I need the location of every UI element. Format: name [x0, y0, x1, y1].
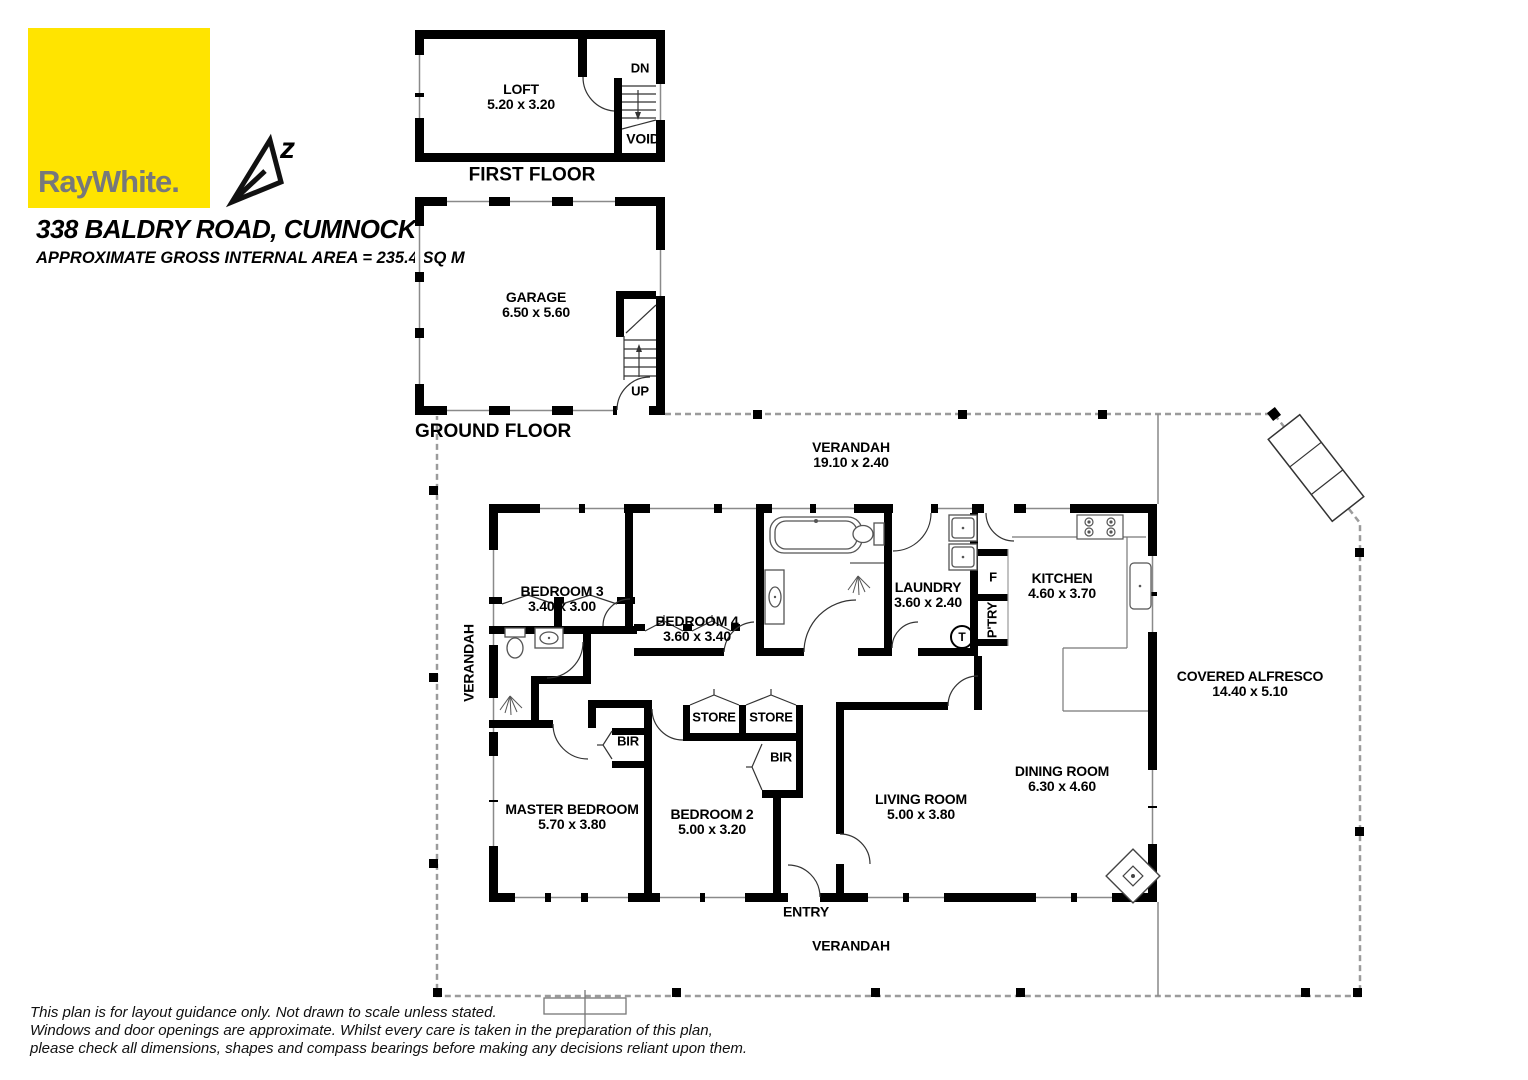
- room-name: BEDROOM 4: [656, 614, 739, 629]
- room-name: COVERED ALFRESCO: [1177, 669, 1323, 684]
- stairs-dn-label: DN: [631, 61, 649, 76]
- room-name: MASTER BEDROOM: [505, 802, 638, 817]
- stairs-up-label: UP: [631, 384, 649, 399]
- room-name: DINING ROOM: [1015, 764, 1109, 779]
- disclaimer-line-1: This plan is for layout guidance only. N…: [30, 1004, 747, 1022]
- room-label-living-room: LIVING ROOM 5.00 x 3.80: [875, 792, 967, 822]
- room-dims: 3.60 x 3.40: [656, 629, 739, 644]
- room-name: BEDROOM 3: [521, 584, 604, 599]
- room-dims: 3.40 x 3.00: [521, 599, 604, 614]
- room-dims: 6.50 x 5.60: [502, 305, 570, 320]
- void-label: VOID: [626, 132, 659, 147]
- room-name: KITCHEN: [1028, 571, 1096, 586]
- room-dims: 5.00 x 3.20: [671, 822, 754, 837]
- room-name: LIVING ROOM: [875, 792, 967, 807]
- first-floor-title: FIRST FLOOR: [469, 168, 596, 183]
- room-label-kitchen: KITCHEN 4.60 x 3.70: [1028, 571, 1096, 601]
- room-label-bedroom-3: BEDROOM 3 3.40 x 3.00: [521, 584, 604, 614]
- room-dims: 5.20 x 3.20: [487, 97, 555, 112]
- room-dims: 14.40 x 5.10: [1177, 684, 1323, 699]
- room-label-loft: LOFT 5.20 x 3.20: [487, 82, 555, 112]
- disclaimer-line-3: please check all dimensions, shapes and …: [30, 1040, 747, 1058]
- room-label-garage: GARAGE 6.50 x 5.60: [502, 290, 570, 320]
- room-label-dining-room: DINING ROOM 6.30 x 4.60: [1015, 764, 1109, 794]
- room-name: BEDROOM 2: [671, 807, 754, 822]
- room-label-alfresco: COVERED ALFRESCO 14.40 x 5.10: [1177, 669, 1323, 699]
- ground-floor-title: GROUND FLOOR: [415, 424, 571, 439]
- room-name: VERANDAH: [812, 440, 890, 455]
- floorplan-page: RayWhite. z 338 BALDRY ROAD, CUMNOCK APP…: [0, 0, 1528, 1080]
- room-label-master-bedroom: MASTER BEDROOM 5.70 x 3.80: [505, 802, 638, 832]
- kitchen-fixtures: [1008, 515, 1151, 711]
- room-label-bedroom-4: BEDROOM 4 3.60 x 3.40: [656, 614, 739, 644]
- disclaimer-line-2: Windows and door openings are approximat…: [30, 1022, 747, 1040]
- room-label-laundry: LAUNDRY 3.60 x 2.40: [894, 580, 962, 610]
- room-label-verandah-left: VERANDAH: [462, 624, 477, 702]
- room-label-bedroom-2: BEDROOM 2 5.00 x 3.20: [671, 807, 754, 837]
- store-label-1: STORE: [692, 710, 736, 725]
- floor-plan-drawing: [0, 0, 1528, 1080]
- disclaimer-text: This plan is for layout guidance only. N…: [30, 1004, 747, 1058]
- room-name: GARAGE: [502, 290, 570, 305]
- room-dims: 4.60 x 3.70: [1028, 586, 1096, 601]
- bathroom-fixtures: [765, 517, 884, 624]
- room-dims: 3.60 x 2.40: [894, 595, 962, 610]
- bir-label-master: BIR: [617, 734, 639, 749]
- room-label-verandah-bottom: VERANDAH: [812, 939, 890, 954]
- verandah-posts: [429, 407, 1364, 997]
- pantry-label: P'TRY: [985, 602, 1000, 638]
- bir-label-bedroom2: BIR: [770, 750, 792, 765]
- room-dims: 6.30 x 4.60: [1015, 779, 1109, 794]
- fridge-label: F: [989, 570, 997, 585]
- entry-label: ENTRY: [783, 905, 829, 920]
- hot-water-tank-label: T: [950, 625, 974, 649]
- room-dims: 19.10 x 2.40: [812, 455, 890, 470]
- room-label-verandah-top: VERANDAH 19.10 x 2.40: [812, 440, 890, 470]
- alfresco-steps: [1268, 415, 1364, 522]
- room-name: LOFT: [487, 82, 555, 97]
- room-dims: 5.70 x 3.80: [505, 817, 638, 832]
- store-label-2: STORE: [749, 710, 793, 725]
- room-dims: 5.00 x 3.80: [875, 807, 967, 822]
- room-name: LAUNDRY: [894, 580, 962, 595]
